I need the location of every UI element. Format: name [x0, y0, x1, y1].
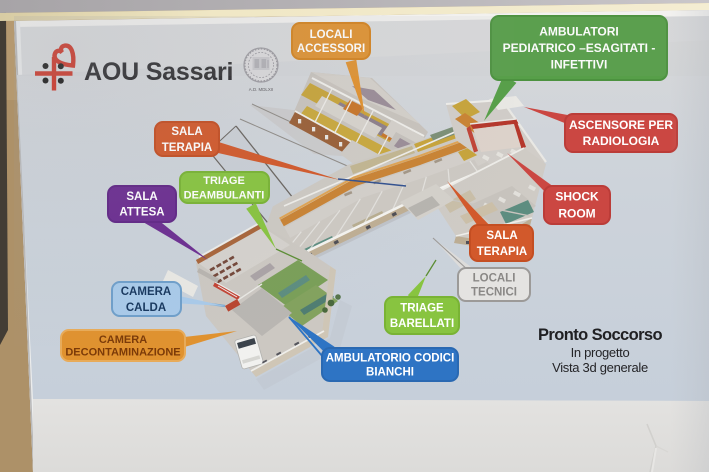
svg-text:SHOCK: SHOCK — [555, 190, 599, 204]
svg-text:DECONTAMINAZIONE: DECONTAMINAZIONE — [65, 347, 180, 359]
svg-text:Vista 3d generale: Vista 3d generale — [552, 360, 648, 375]
svg-text:BIANCHI: BIANCHI — [366, 366, 414, 378]
svg-text:In progetto: In progetto — [571, 345, 630, 360]
svg-text:AMBULATORIO CODICI: AMBULATORIO CODICI — [326, 352, 455, 364]
svg-text:RADIOLOGIA: RADIOLOGIA — [583, 134, 660, 148]
svg-text:ASCENSORE PER: ASCENSORE PER — [569, 118, 673, 132]
svg-text:ROOM: ROOM — [558, 207, 595, 221]
svg-text:Pronto Soccorso: Pronto Soccorso — [538, 326, 662, 344]
